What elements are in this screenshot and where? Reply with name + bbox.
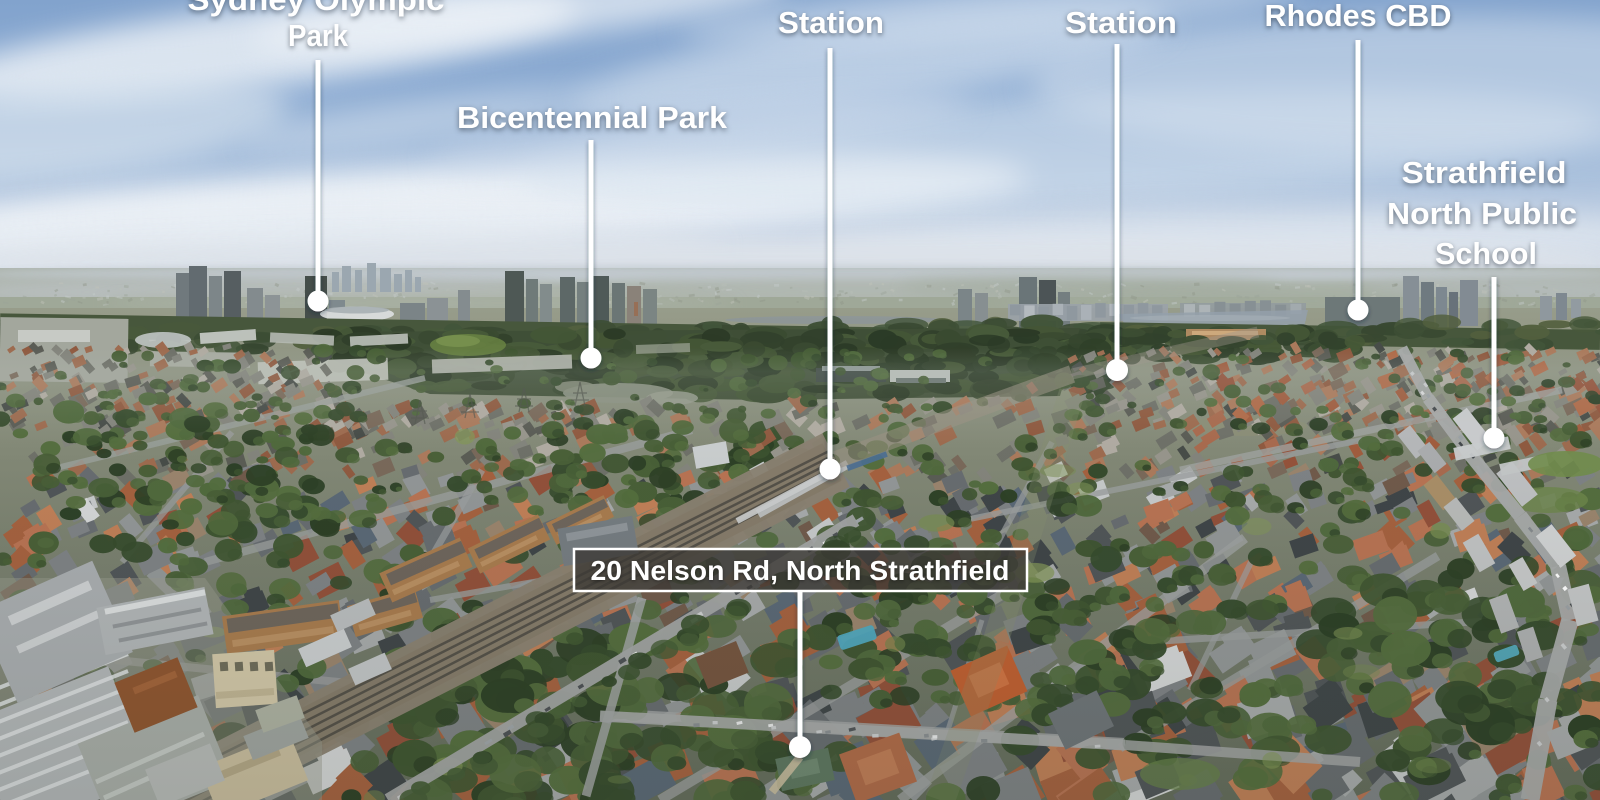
svg-text:Station: Station (1065, 5, 1177, 40)
svg-text:School: School (1435, 236, 1537, 271)
svg-text:Rhodes CBD: Rhodes CBD (1265, 0, 1452, 33)
svg-text:Station: Station (778, 5, 884, 40)
svg-text:Strathfield: Strathfield (1402, 155, 1567, 190)
svg-text:Bicentennial Park: Bicentennial Park (457, 100, 728, 135)
svg-text:Sydney Olympic: Sydney Olympic (188, 0, 445, 17)
svg-text:North Public: North Public (1387, 196, 1577, 231)
svg-text:Park: Park (288, 18, 349, 53)
svg-text:20 Nelson Rd, North Strathfiel: 20 Nelson Rd, North Strathfield (591, 555, 1010, 586)
